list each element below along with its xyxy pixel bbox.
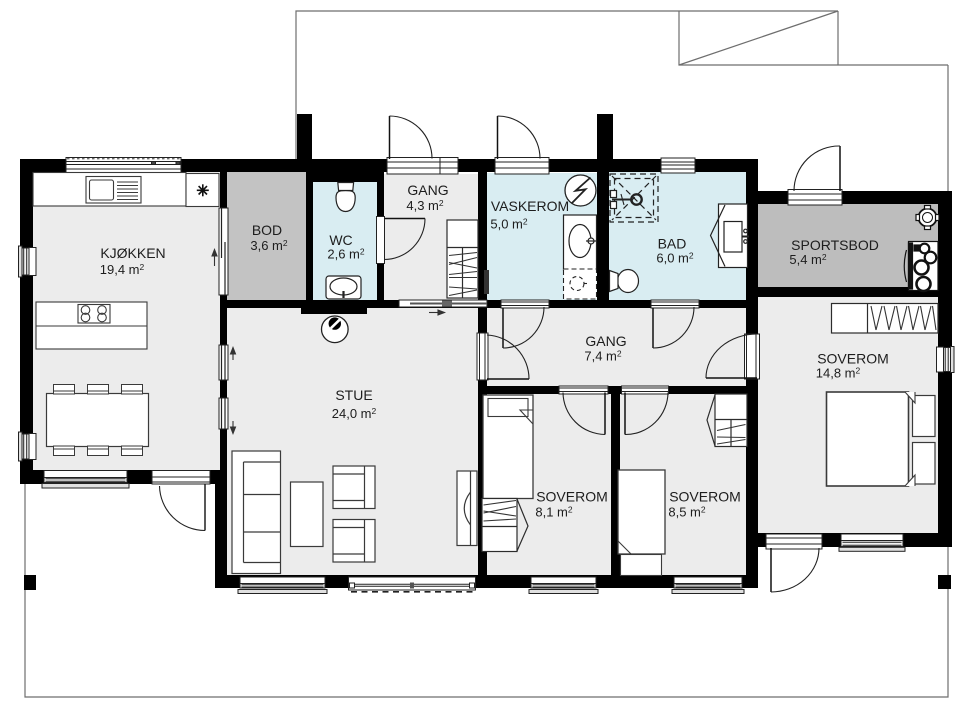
svg-text:SOVEROM: SOVEROM — [817, 351, 889, 367]
svg-text:BAD: BAD — [658, 236, 687, 252]
svg-text:GANG: GANG — [407, 182, 448, 198]
svg-text:7,4 m2: 7,4 m2 — [584, 349, 622, 364]
svg-text:STUE: STUE — [335, 387, 372, 403]
svg-text:BOD: BOD — [252, 222, 282, 238]
svg-text:SOVEROM: SOVEROM — [536, 489, 608, 505]
svg-text:GANG: GANG — [585, 333, 626, 349]
svg-text:5,4 m2: 5,4 m2 — [789, 252, 827, 267]
svg-text:8,5 m2: 8,5 m2 — [668, 505, 706, 520]
svg-text:3,6 m2: 3,6 m2 — [250, 238, 288, 253]
svg-text:24,0 m2: 24,0 m2 — [332, 406, 377, 421]
svg-text:SPORTSBOD: SPORTSBOD — [791, 237, 879, 253]
svg-text:5,0 m2: 5,0 m2 — [490, 217, 528, 232]
svg-text:19,4 m2: 19,4 m2 — [100, 262, 145, 277]
svg-text:VASKEROM: VASKEROM — [491, 198, 569, 214]
svg-text:SOVEROM: SOVEROM — [669, 489, 741, 505]
svg-text:8,1 m2: 8,1 m2 — [535, 505, 573, 520]
svg-text:KJØKKEN: KJØKKEN — [100, 245, 165, 261]
svg-text:6,0 m2: 6,0 m2 — [656, 251, 694, 266]
svg-text:2,6 m2: 2,6 m2 — [327, 247, 365, 262]
svg-text:14,8 m2: 14,8 m2 — [816, 366, 861, 381]
svg-text:4,3 m2: 4,3 m2 — [406, 198, 444, 213]
